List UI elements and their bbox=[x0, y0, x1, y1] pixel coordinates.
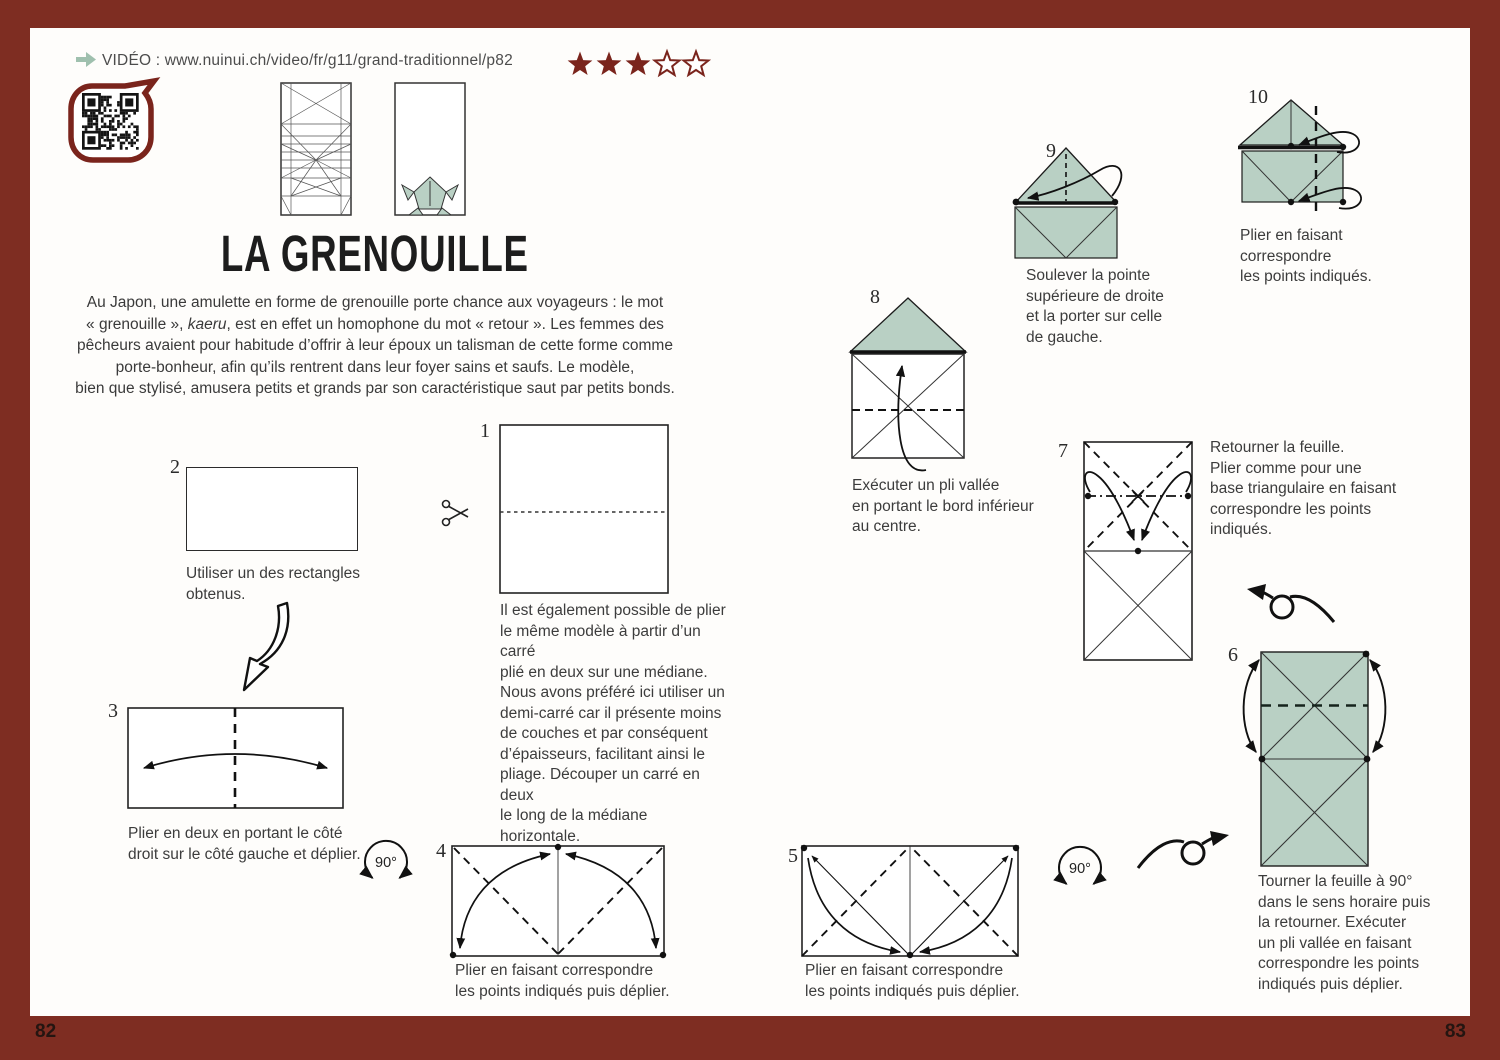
video-arrow-icon bbox=[76, 51, 98, 68]
step-7-number: 7 bbox=[1058, 440, 1068, 463]
step-4-diagram bbox=[450, 844, 674, 964]
step-5-number: 5 bbox=[788, 845, 798, 868]
step-7-diagram bbox=[1076, 434, 1206, 666]
step-3-diagram bbox=[126, 706, 350, 816]
page-number-right: 83 bbox=[1445, 1021, 1466, 1043]
step-9-caption: Soulever la pointe supérieure de droite … bbox=[1026, 266, 1201, 348]
step-8-caption: Exécuter un pli vallée en portant le bor… bbox=[852, 476, 1052, 538]
star-icon bbox=[597, 52, 622, 76]
step-10-diagram bbox=[1225, 90, 1400, 230]
svg-text:90°: 90° bbox=[1069, 861, 1091, 877]
step-9-diagram bbox=[1008, 142, 1158, 264]
step-3-caption: Plier en deux en portant le côté droit s… bbox=[128, 824, 393, 865]
step-2-caption: Utiliser un des rectangles obtenus. bbox=[186, 564, 406, 605]
intro-paragraph: Au Japon, une amulette en forme de greno… bbox=[68, 292, 682, 400]
page-number-left: 82 bbox=[35, 1021, 56, 1043]
step-3-number: 3 bbox=[108, 700, 118, 723]
star-icon bbox=[626, 52, 651, 76]
rotate-90-icon: 90° bbox=[1050, 836, 1112, 898]
step-5-diagram bbox=[800, 844, 1026, 964]
step-2-diagram bbox=[186, 467, 358, 551]
star-icon bbox=[684, 52, 709, 76]
step-5-caption: Plier en faisant correspondre les points… bbox=[805, 961, 1065, 1002]
turn-over-icon bbox=[1132, 824, 1232, 879]
step-10-caption: Plier en faisant correspondre les points… bbox=[1240, 226, 1425, 288]
step-1-caption: Il est également possible de plier le mê… bbox=[500, 601, 730, 847]
page-title: LA GRENOUILLE bbox=[55, 224, 695, 283]
video-link: VIDÉO : www.nuinui.ch/video/fr/g11/grand… bbox=[102, 52, 513, 70]
step-4-caption: Plier en faisant correspondre les points… bbox=[455, 961, 715, 1002]
step-7-caption: Retourner la feuille. Plier comme pour u… bbox=[1210, 438, 1445, 541]
rotate-90-icon: 90° bbox=[356, 830, 418, 892]
difficulty-rating bbox=[566, 48, 716, 82]
step-1-diagram bbox=[438, 418, 678, 600]
step-4-number: 4 bbox=[436, 840, 446, 863]
step-6-caption: Tourner la feuille à 90° dans le sens ho… bbox=[1258, 872, 1463, 995]
step-6-diagram bbox=[1226, 646, 1398, 881]
qr-code bbox=[68, 80, 168, 170]
star-icon bbox=[568, 52, 593, 76]
crease-pattern-thumbnail bbox=[280, 82, 352, 216]
star-icon bbox=[655, 52, 680, 76]
curved-hollow-arrow-icon bbox=[224, 600, 309, 695]
finished-model-thumbnail bbox=[394, 82, 466, 216]
step-2-number: 2 bbox=[170, 456, 180, 479]
step-8-diagram bbox=[846, 290, 976, 485]
scissors-icon bbox=[443, 501, 469, 526]
svg-text:90°: 90° bbox=[375, 855, 397, 871]
book-spread: VIDÉO : www.nuinui.ch/video/fr/g11/grand… bbox=[0, 0, 1500, 1060]
turn-over-icon bbox=[1246, 576, 1341, 631]
